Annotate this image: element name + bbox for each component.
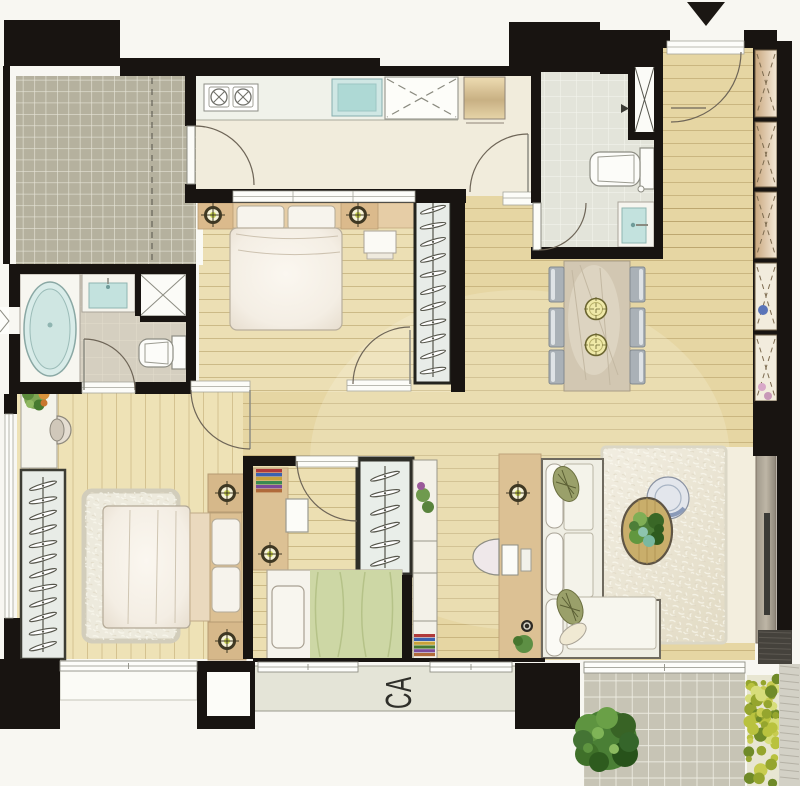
svg-text:CA: CA xyxy=(380,676,419,709)
